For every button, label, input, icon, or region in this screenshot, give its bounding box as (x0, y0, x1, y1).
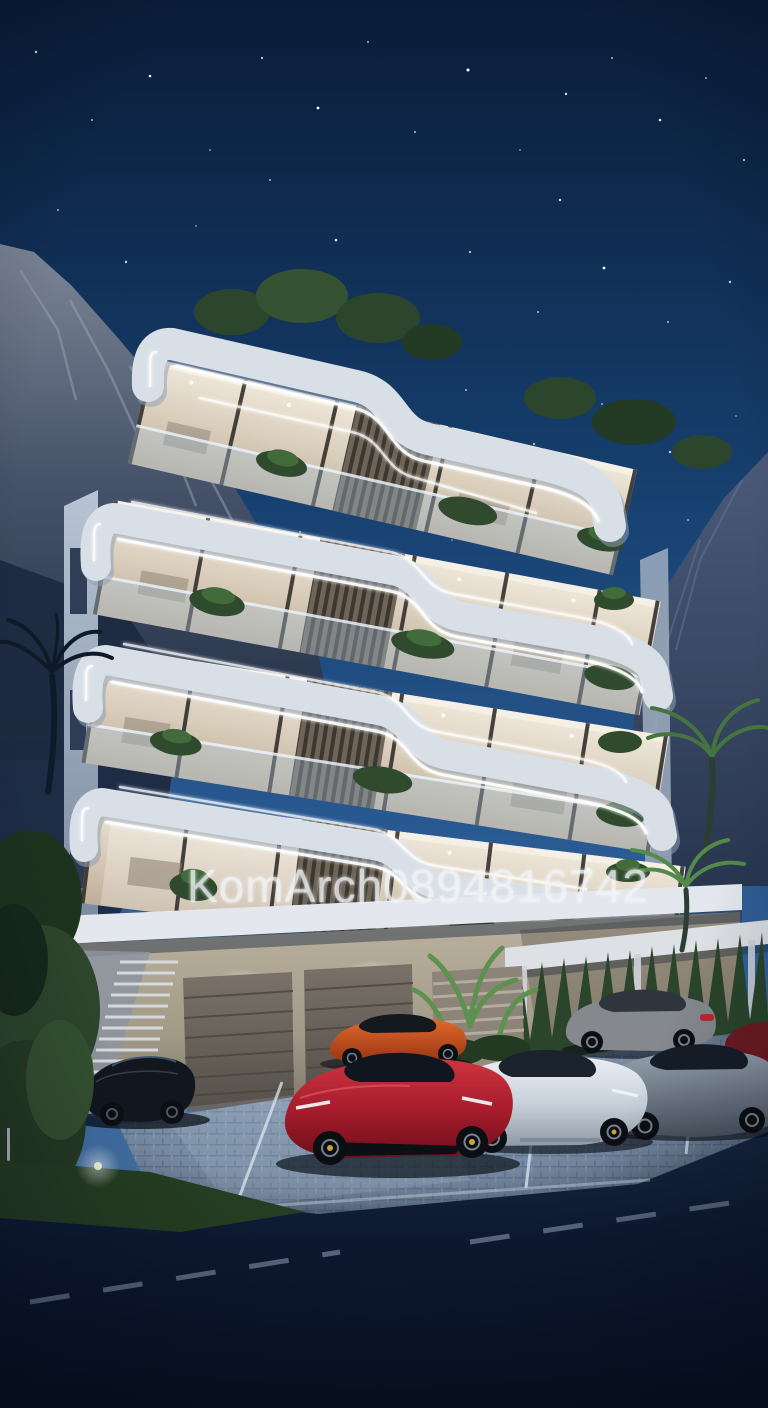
vignette-overlay (0, 0, 768, 1408)
architectural-render-image: KomArch0894816742 (0, 0, 768, 1408)
